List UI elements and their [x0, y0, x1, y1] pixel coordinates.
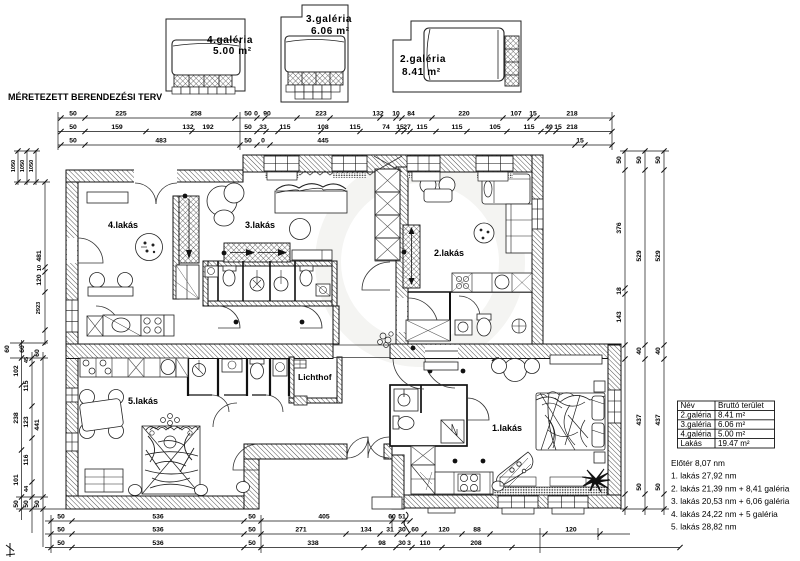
svg-text:441: 441	[34, 419, 41, 431]
svg-text:5.lakás: 5.lakás	[128, 396, 158, 406]
svg-text:Lichthof: Lichthof	[298, 372, 332, 382]
svg-text:50: 50	[616, 156, 623, 164]
svg-text:98: 98	[378, 540, 386, 547]
svg-text:4. lakás 24,22 nm + 5 galéria: 4. lakás 24,22 nm + 5 galéria	[671, 509, 778, 519]
svg-text:50: 50	[13, 500, 20, 508]
svg-text:31: 31	[386, 527, 394, 534]
svg-text:50: 50	[655, 483, 662, 491]
svg-text:116: 116	[23, 454, 30, 465]
svg-text:44: 44	[24, 485, 30, 492]
svg-text:2.galéria: 2.galéria	[681, 411, 712, 420]
svg-text:4.lakás: 4.lakás	[108, 220, 138, 230]
svg-text:0: 0	[254, 111, 258, 118]
svg-text:225: 225	[115, 111, 127, 118]
svg-text:15: 15	[554, 124, 562, 131]
svg-text:536: 536	[152, 514, 164, 521]
svg-text:445: 445	[317, 138, 329, 145]
svg-text:120: 120	[36, 274, 43, 286]
svg-text:8.41 m²: 8.41 m²	[718, 411, 745, 420]
svg-text:3. lakás 20,53 nm + 6,06 galér: 3. lakás 20,53 nm + 6,06 galéria	[671, 496, 790, 506]
svg-text:50: 50	[244, 111, 252, 118]
svg-text:437: 437	[636, 414, 643, 426]
svg-text:101: 101	[13, 474, 20, 486]
svg-text:49: 49	[545, 124, 553, 131]
svg-text:3.galéria: 3.galéria	[306, 14, 352, 25]
svg-text:3.galéria: 3.galéria	[681, 420, 712, 429]
svg-text:376: 376	[616, 222, 623, 234]
svg-text:132: 132	[372, 111, 384, 118]
svg-text:60: 60	[4, 345, 11, 353]
svg-text:50: 50	[636, 156, 643, 164]
svg-text:10: 10	[392, 111, 400, 118]
svg-text:223: 223	[315, 111, 327, 118]
svg-text:8.41 m²: 8.41 m²	[402, 67, 441, 78]
svg-text:Bruttó terület: Bruttó terület	[718, 401, 765, 410]
svg-text:3.lakás: 3.lakás	[245, 220, 275, 230]
svg-text:110: 110	[420, 540, 431, 547]
svg-text:60: 60	[34, 349, 41, 357]
svg-text:132: 132	[182, 124, 194, 131]
svg-text:536: 536	[152, 540, 164, 547]
svg-text:50: 50	[57, 514, 65, 521]
svg-text:74: 74	[382, 124, 390, 131]
svg-text:105: 105	[489, 124, 501, 131]
svg-text:5.00 m²: 5.00 m²	[213, 46, 252, 57]
svg-text:107: 107	[510, 111, 522, 118]
svg-text:405: 405	[318, 514, 330, 521]
svg-text:50: 50	[655, 156, 662, 164]
svg-text:45: 45	[24, 357, 30, 363]
svg-text:2.galéria: 2.galéria	[400, 54, 446, 65]
svg-text:1. lakás 27,92 nm: 1. lakás 27,92 nm	[671, 471, 737, 481]
svg-text:10: 10	[37, 265, 43, 271]
svg-text:15: 15	[576, 138, 584, 145]
svg-text:220: 220	[458, 111, 470, 118]
svg-text:50: 50	[69, 111, 77, 118]
svg-text:481: 481	[36, 250, 43, 262]
svg-text:120: 120	[438, 527, 450, 534]
svg-text:120: 120	[565, 527, 577, 534]
svg-text:50: 50	[57, 540, 65, 547]
svg-text:437: 437	[655, 414, 662, 426]
svg-text:115: 115	[524, 124, 535, 131]
svg-text:19.47 m²: 19.47 m²	[718, 439, 750, 448]
svg-text:51: 51	[398, 514, 406, 521]
svg-text:102: 102	[13, 365, 20, 377]
svg-text:60: 60	[388, 514, 396, 521]
svg-text:50: 50	[69, 124, 77, 131]
svg-text:238: 238	[13, 412, 20, 424]
svg-text:529: 529	[636, 250, 643, 262]
svg-text:536: 536	[152, 527, 164, 534]
svg-text:33: 33	[259, 124, 267, 131]
svg-text:5. lakás 28,82 nm: 5. lakás 28,82 nm	[671, 522, 737, 532]
svg-text:218: 218	[566, 111, 578, 118]
svg-text:159: 159	[111, 124, 123, 131]
svg-text:40: 40	[636, 347, 643, 355]
svg-text:2. lakás 21,39 nm + 8,41 galér: 2. lakás 21,39 nm + 8,41 galéria	[671, 483, 790, 493]
svg-text:115: 115	[23, 380, 30, 391]
svg-text:529: 529	[655, 250, 662, 262]
svg-text:5.00 m²: 5.00 m²	[718, 429, 745, 438]
svg-text:1.lakás: 1.lakás	[492, 423, 522, 433]
svg-text:MÉRETEZETT BERENDEZÉSI TERV: MÉRETEZETT BERENDEZÉSI TERV	[8, 92, 162, 102]
svg-text:6.06 m²: 6.06 m²	[311, 26, 350, 37]
svg-text:50: 50	[69, 138, 77, 145]
svg-text:18: 18	[616, 287, 623, 295]
svg-text:50: 50	[57, 527, 65, 534]
svg-text:1050: 1050	[29, 160, 35, 172]
svg-text:134: 134	[360, 527, 372, 534]
svg-text:115: 115	[350, 124, 361, 131]
svg-text:50: 50	[248, 527, 256, 534]
svg-text:40: 40	[655, 347, 662, 355]
svg-text:60: 60	[19, 345, 26, 353]
svg-text:115: 115	[417, 124, 428, 131]
svg-text:2.lakás: 2.lakás	[434, 248, 464, 258]
svg-text:108: 108	[317, 124, 329, 131]
svg-text:84: 84	[407, 111, 415, 118]
svg-text:Előtér 8,07 nm: Előtér 8,07 nm	[671, 458, 725, 468]
svg-text:3: 3	[407, 540, 411, 547]
svg-text:218: 218	[566, 124, 578, 131]
svg-text:0: 0	[261, 138, 265, 145]
svg-text:1050: 1050	[11, 160, 17, 172]
svg-text:15: 15	[529, 111, 537, 118]
svg-text:1050: 1050	[20, 160, 26, 172]
svg-text:115: 115	[280, 124, 291, 131]
svg-text:271: 271	[295, 527, 307, 534]
svg-text:258: 258	[190, 111, 202, 118]
svg-text:208: 208	[470, 540, 482, 547]
svg-text:4.galéria: 4.galéria	[207, 35, 253, 46]
svg-text:50: 50	[636, 483, 643, 491]
svg-text:2923: 2923	[36, 302, 42, 314]
svg-text:50: 50	[248, 514, 256, 521]
svg-text:192: 192	[202, 124, 214, 131]
svg-text:88: 88	[473, 527, 481, 534]
svg-text:30: 30	[398, 540, 406, 547]
svg-text:50: 50	[34, 500, 41, 508]
svg-text:30: 30	[398, 527, 406, 534]
svg-text:4.galéria: 4.galéria	[681, 429, 712, 438]
svg-text:27: 27	[403, 124, 411, 131]
svg-text:338: 338	[307, 540, 319, 547]
svg-text:143: 143	[616, 311, 623, 323]
svg-text:483: 483	[155, 138, 167, 145]
svg-text:123: 123	[23, 416, 30, 428]
svg-text:50: 50	[244, 138, 252, 145]
svg-text:115: 115	[452, 124, 463, 131]
svg-text:Lakás: Lakás	[681, 439, 702, 448]
svg-text:90: 90	[263, 111, 271, 118]
svg-text:Név: Név	[681, 401, 695, 410]
svg-text:50: 50	[23, 500, 30, 508]
svg-text:50: 50	[244, 124, 252, 131]
svg-text:60: 60	[411, 527, 419, 534]
svg-text:50: 50	[248, 540, 256, 547]
svg-text:6.06 m²: 6.06 m²	[718, 420, 745, 429]
